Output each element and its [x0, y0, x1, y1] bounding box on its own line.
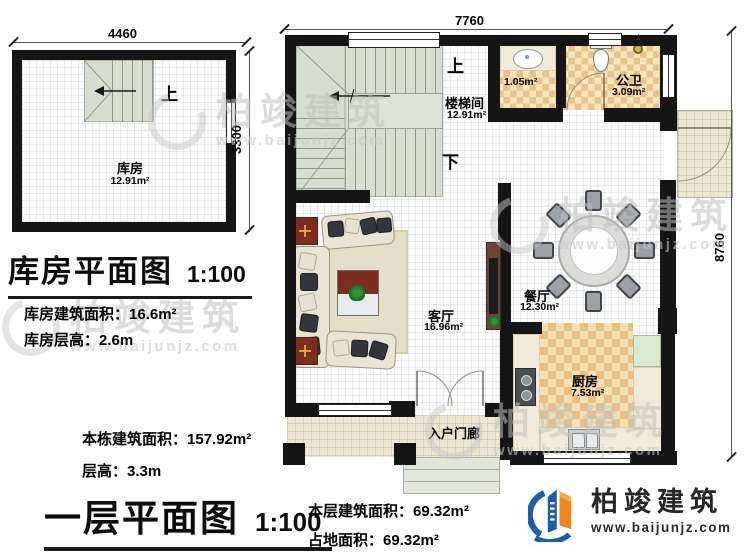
wall [502, 322, 542, 334]
storage-plan-scale: 1:100 [187, 261, 246, 288]
storage-stat-area: 库房建筑面积：16.6m² [24, 303, 177, 324]
wall [604, 108, 677, 122]
storage-plan-title: 库房平面图 [8, 246, 173, 291]
floor-dim-top-line [283, 29, 669, 30]
wall [488, 45, 500, 110]
stat-value: 69.32m² [413, 503, 469, 520]
plant-icon [489, 316, 500, 327]
storage-dim-top-line [12, 42, 247, 43]
window [588, 33, 622, 46]
storage-dim-right-label: 3300 [229, 125, 244, 154]
wall [500, 330, 513, 460]
plant-icon [349, 285, 365, 301]
kitchen-counter-right [633, 367, 662, 429]
entry-steps [403, 457, 500, 494]
storage-title-block: 库房平面图 1:100 [8, 246, 252, 299]
stat-value: 2.6m [99, 332, 133, 349]
logo-icon [528, 482, 582, 542]
stat-value: 3.3m [127, 463, 161, 480]
window [318, 404, 392, 416]
stat-label: 本层建筑面积： [308, 503, 413, 520]
window [662, 54, 675, 98]
stair-lines [296, 45, 443, 197]
floor-dim-top-label: 7760 [455, 13, 484, 28]
floor-dim-right-line [731, 32, 732, 458]
storage-stair-lines [84, 60, 154, 122]
dining-chair [585, 291, 602, 312]
wall [488, 108, 563, 122]
terrace-door-arc [677, 126, 733, 184]
dining-table-top [570, 227, 618, 275]
porch-pillar [394, 443, 416, 465]
kitchen-area-label: 7.53m² [571, 387, 604, 399]
floor-dim-right-label: 8760 [712, 233, 727, 262]
stat-label: 占地面积： [308, 532, 383, 549]
stove-icon [515, 368, 536, 406]
stairs-up-label: 上 [447, 52, 464, 77]
storage-dim-top-label: 4460 [108, 26, 137, 41]
stairs-down-label: 下 [442, 148, 459, 173]
kitchen-counter-bottom [540, 427, 662, 453]
sofa-bottom [325, 330, 397, 370]
dining-area-label: 12.30m² [520, 301, 559, 313]
wall [500, 240, 511, 332]
logo-brand-text: 柏竣建筑 [591, 489, 732, 516]
stat-label: 本栋建筑面积： [82, 431, 187, 448]
wall [285, 35, 296, 417]
dining-chair [585, 190, 602, 211]
tv-icon [489, 258, 498, 314]
stat-value: 157.92m² [187, 431, 251, 448]
porch-pillar [283, 443, 305, 465]
storage-stat-height: 库房层高：2.6m [24, 329, 133, 350]
stat-value: 16.6m² [129, 306, 177, 323]
living-area-label: 16.96m² [424, 321, 463, 333]
wall [389, 401, 415, 417]
french-door-arcs [415, 367, 485, 407]
wall [498, 183, 511, 240]
wall [556, 45, 566, 108]
watermark-swirl-icon [0, 288, 70, 365]
fridge-icon [633, 335, 661, 367]
floor-title-block: 一层平面图 1:100 [44, 488, 332, 551]
bathroom-door-arc [563, 70, 606, 112]
dining-chair [634, 242, 655, 259]
sink-icon [568, 429, 600, 450]
wall [660, 180, 676, 311]
wall [285, 190, 370, 203]
floor-plan-title: 一层平面图 [44, 488, 239, 542]
stairwell-area: 12.91m² [447, 109, 486, 121]
storage-dim-right-line [249, 52, 250, 232]
building-stat-total-area: 本栋建筑面积：157.92m² [82, 428, 251, 449]
floor-stat-area: 本层建筑面积：69.32m² [308, 500, 469, 521]
washroom-area-label: 1.05m² [504, 76, 537, 88]
storage-stairs-up-label: 上 [161, 80, 178, 105]
window [543, 452, 631, 464]
washbasin-icon [513, 49, 543, 69]
wall [485, 403, 510, 417]
stat-label: 库房层高： [24, 332, 99, 349]
stat-label: 层高： [82, 463, 127, 480]
brand-logo: 柏竣建筑 www.baijunjz.com [528, 482, 732, 542]
window [348, 32, 440, 48]
floor-stat-footprint: 占地面积：69.32m² [308, 529, 439, 550]
stat-value: 69.32m² [383, 532, 439, 549]
toilet-area-label: 3.09m² [612, 86, 645, 98]
storage-room-area: 12.91m² [100, 175, 160, 187]
dining-chair [533, 242, 554, 259]
floor-plan-sheet: 4460 3300 上 库房 12.91m² 库房平面图 1:100 库房建筑面… [0, 0, 750, 556]
building-stat-height: 层高：3.3m [82, 460, 161, 481]
porch-label: 入户门廊 [428, 423, 480, 442]
washbasin-drain [525, 55, 529, 59]
wall [658, 308, 677, 334]
sofa-top [321, 210, 396, 250]
logo-url-text: www.baijunjz.com [591, 520, 732, 535]
stat-label: 库房建筑面积： [24, 306, 129, 323]
